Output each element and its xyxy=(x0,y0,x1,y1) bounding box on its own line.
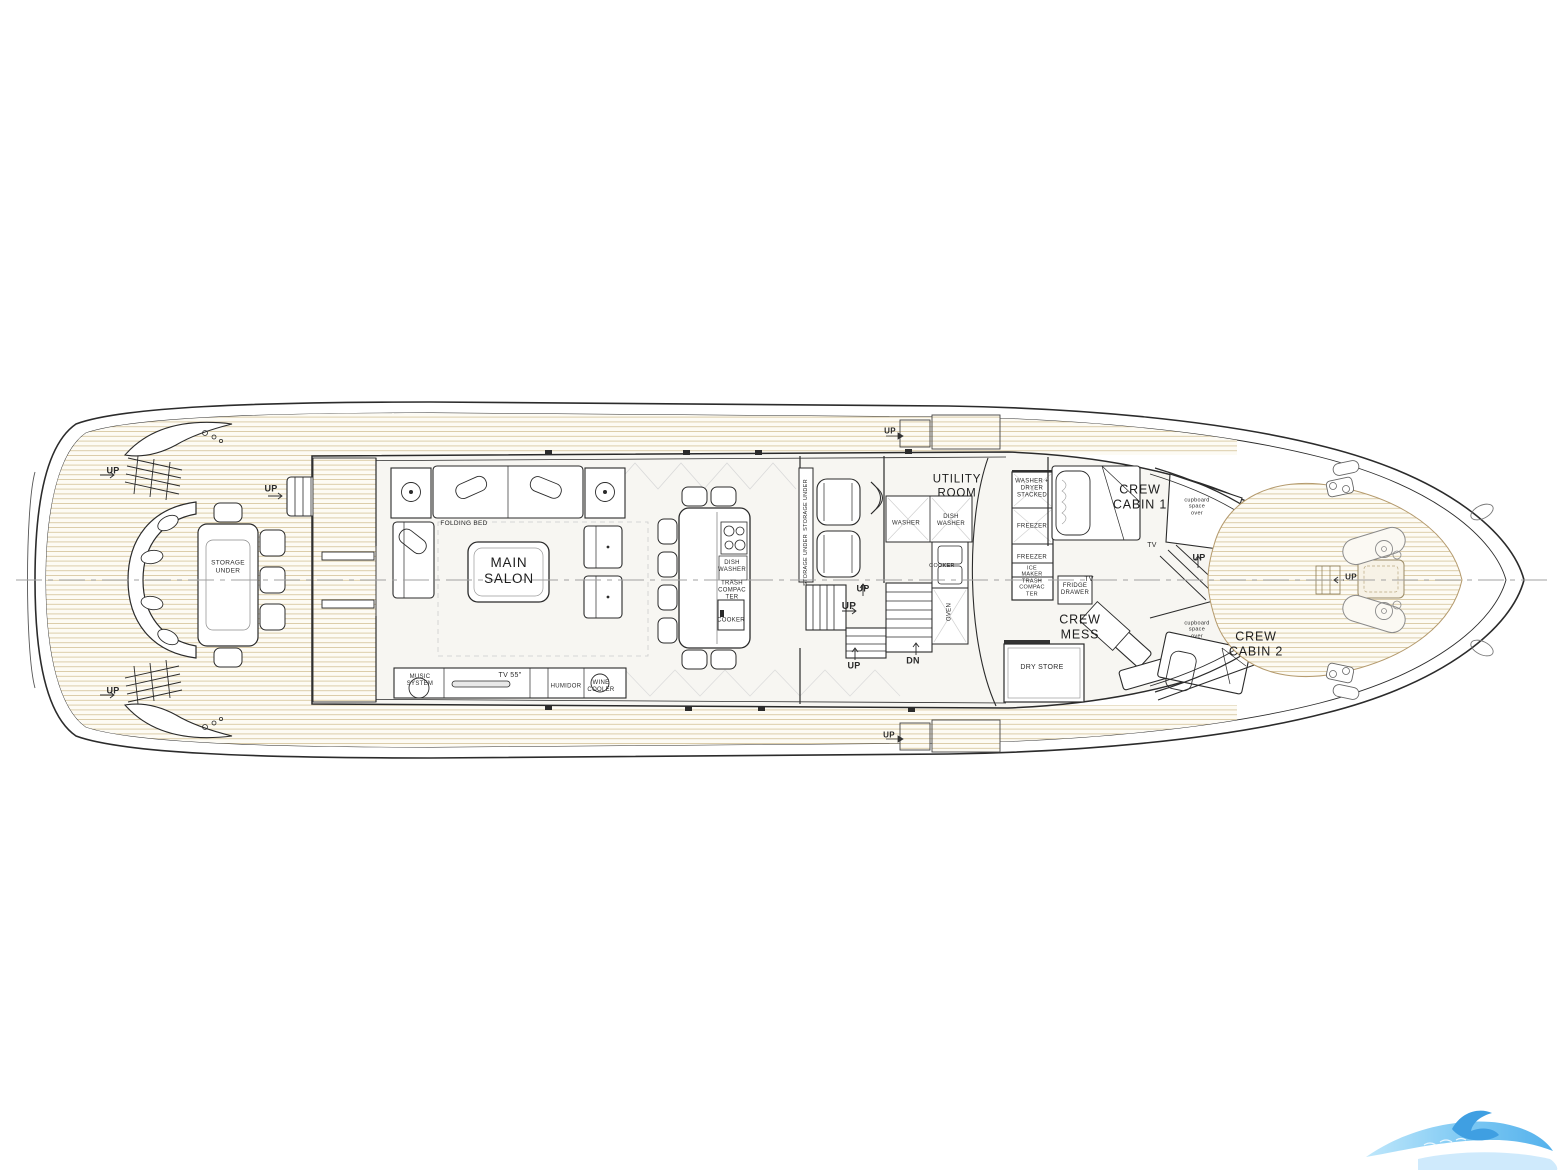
pilot-seat-2 xyxy=(817,531,860,577)
blue-wave-watermark-logo xyxy=(1366,1111,1557,1170)
deck-plan-drawing xyxy=(0,0,1560,1170)
lamp-table-left xyxy=(391,468,431,518)
deck-plan-canvas: UPUPUPUPUPUPUPUPDNUPUPFOLDING BEDMAIN SA… xyxy=(0,0,1560,1170)
salon-sofa xyxy=(433,466,583,518)
armchair-lower xyxy=(584,576,622,618)
armchair-upper xyxy=(584,526,622,568)
crew-cabin-1-bed xyxy=(1052,466,1140,540)
tv-55-screen xyxy=(452,681,510,687)
sliding-door xyxy=(322,600,374,608)
chaise-sofa xyxy=(393,522,434,598)
down-staircase xyxy=(886,583,932,652)
pilot-seat-1 xyxy=(817,479,860,525)
coffee-table xyxy=(468,542,549,602)
utility-cooker-unit xyxy=(932,542,968,588)
helm-storage-strip xyxy=(799,468,813,582)
aft-dining-table xyxy=(198,524,258,646)
lamp-table-right xyxy=(585,468,625,518)
sliding-door xyxy=(322,552,374,560)
utility-oven-unit xyxy=(932,588,968,644)
utility-counter xyxy=(886,496,972,542)
media-cabinet xyxy=(394,668,626,698)
dry-store xyxy=(1004,644,1084,702)
